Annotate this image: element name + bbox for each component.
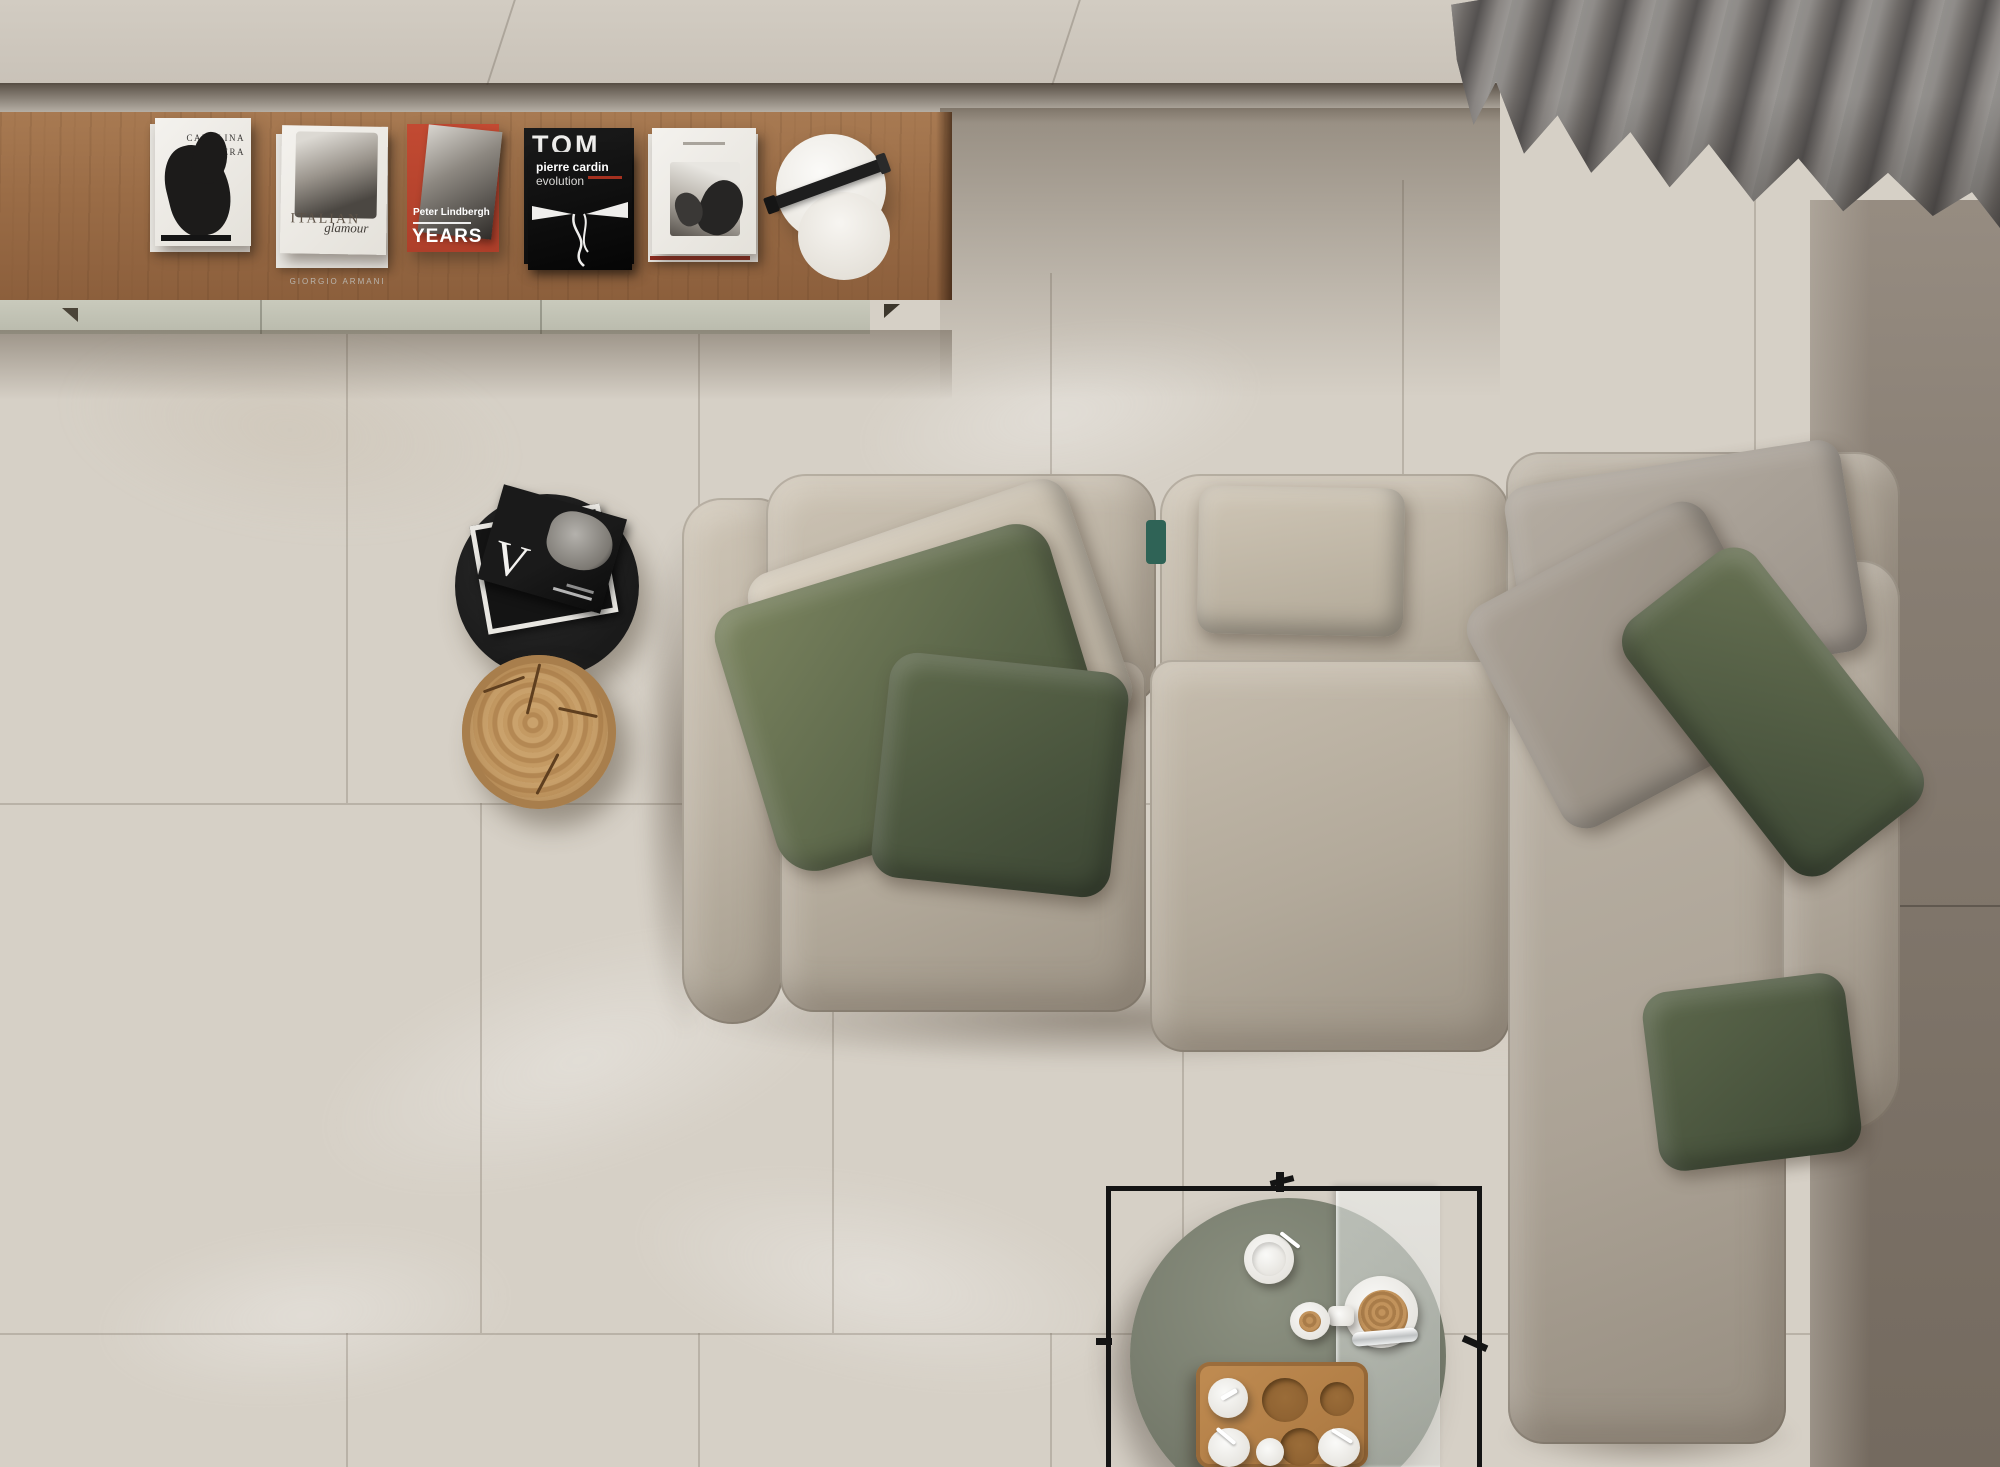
shelf-shadow bbox=[0, 330, 952, 400]
title-bold: pierre cardin bbox=[536, 160, 609, 174]
frame-clip-left bbox=[1096, 1338, 1112, 1345]
log-stool bbox=[462, 655, 616, 809]
tray-recess bbox=[1320, 1382, 1354, 1416]
pillow-lumbar-gray bbox=[1197, 485, 1406, 637]
shelf-edge bbox=[936, 112, 952, 300]
teapot-handle bbox=[1328, 1306, 1354, 1326]
tray-cup bbox=[1208, 1428, 1250, 1467]
cover-photo bbox=[295, 131, 378, 218]
floor-vein bbox=[605, 1128, 1155, 1432]
book-big-word: YEARS bbox=[412, 226, 482, 248]
tray-recess bbox=[1280, 1428, 1320, 1466]
book-italian-glamour: ITALIAN glamour bbox=[280, 125, 388, 255]
cover-caption-line bbox=[652, 142, 756, 145]
cabinet-handle bbox=[884, 304, 900, 318]
floor-vein bbox=[82, 1208, 527, 1422]
log-crack bbox=[535, 753, 559, 795]
living-room-topdown-scene: CAROLINA HERRERA GIORGIO ARMANI ITALIAN … bbox=[0, 0, 2000, 1467]
cabinet-seam bbox=[260, 300, 262, 334]
tile-joint bbox=[1050, 1333, 1052, 1467]
magazine-cover-photo bbox=[541, 505, 620, 577]
log-crack bbox=[526, 663, 541, 714]
book-pierre-cardin: pierre cardin evolution bbox=[528, 152, 632, 270]
floor-shadow bbox=[940, 108, 1500, 398]
book-photo-monograph bbox=[652, 128, 756, 254]
book-lindbergh-years: Peter Lindbergh YEARS bbox=[407, 124, 499, 252]
cup-wood-lid bbox=[1299, 1311, 1321, 1332]
tray-creamer bbox=[1256, 1438, 1284, 1466]
sofa-seat-right bbox=[1150, 660, 1510, 1052]
teacup bbox=[1252, 1242, 1286, 1276]
cabinet-handle bbox=[62, 308, 78, 322]
cover-footer-bar bbox=[161, 235, 231, 241]
cover-rule bbox=[413, 222, 471, 224]
book-author: Peter Lindbergh bbox=[413, 207, 490, 218]
cabinet-front bbox=[0, 300, 870, 334]
tile-joint bbox=[698, 1333, 700, 1467]
book-top-title: pierre cardin evolution bbox=[536, 160, 632, 188]
cover-artwork bbox=[670, 162, 740, 236]
teal-accent bbox=[1146, 520, 1166, 564]
log-crack bbox=[558, 707, 598, 718]
title-light: evolution bbox=[536, 174, 584, 188]
tile-joint bbox=[346, 1333, 348, 1467]
red-subtitle-bar bbox=[588, 176, 622, 179]
tile-joint bbox=[480, 803, 482, 1333]
under-book-label: GIORGIO ARMANI bbox=[276, 277, 399, 286]
book-subtitle: glamour bbox=[324, 220, 368, 237]
pillow-olive-small bbox=[869, 650, 1131, 900]
stack-red-sliver bbox=[650, 256, 750, 260]
tray-jar bbox=[1208, 1378, 1248, 1418]
tray-recess bbox=[1262, 1378, 1308, 1422]
corset-line-art bbox=[528, 188, 632, 268]
magazine-letter: V bbox=[487, 533, 534, 589]
cabinet-seam bbox=[540, 300, 542, 334]
wall-band bbox=[0, 0, 1500, 85]
book-tom: TOM pierre cardin evolution bbox=[524, 128, 634, 264]
pillow-olive-chaise bbox=[1640, 970, 1864, 1174]
log-crack bbox=[483, 676, 525, 694]
book-carolina-herrera: CAROLINA HERRERA bbox=[155, 118, 251, 246]
